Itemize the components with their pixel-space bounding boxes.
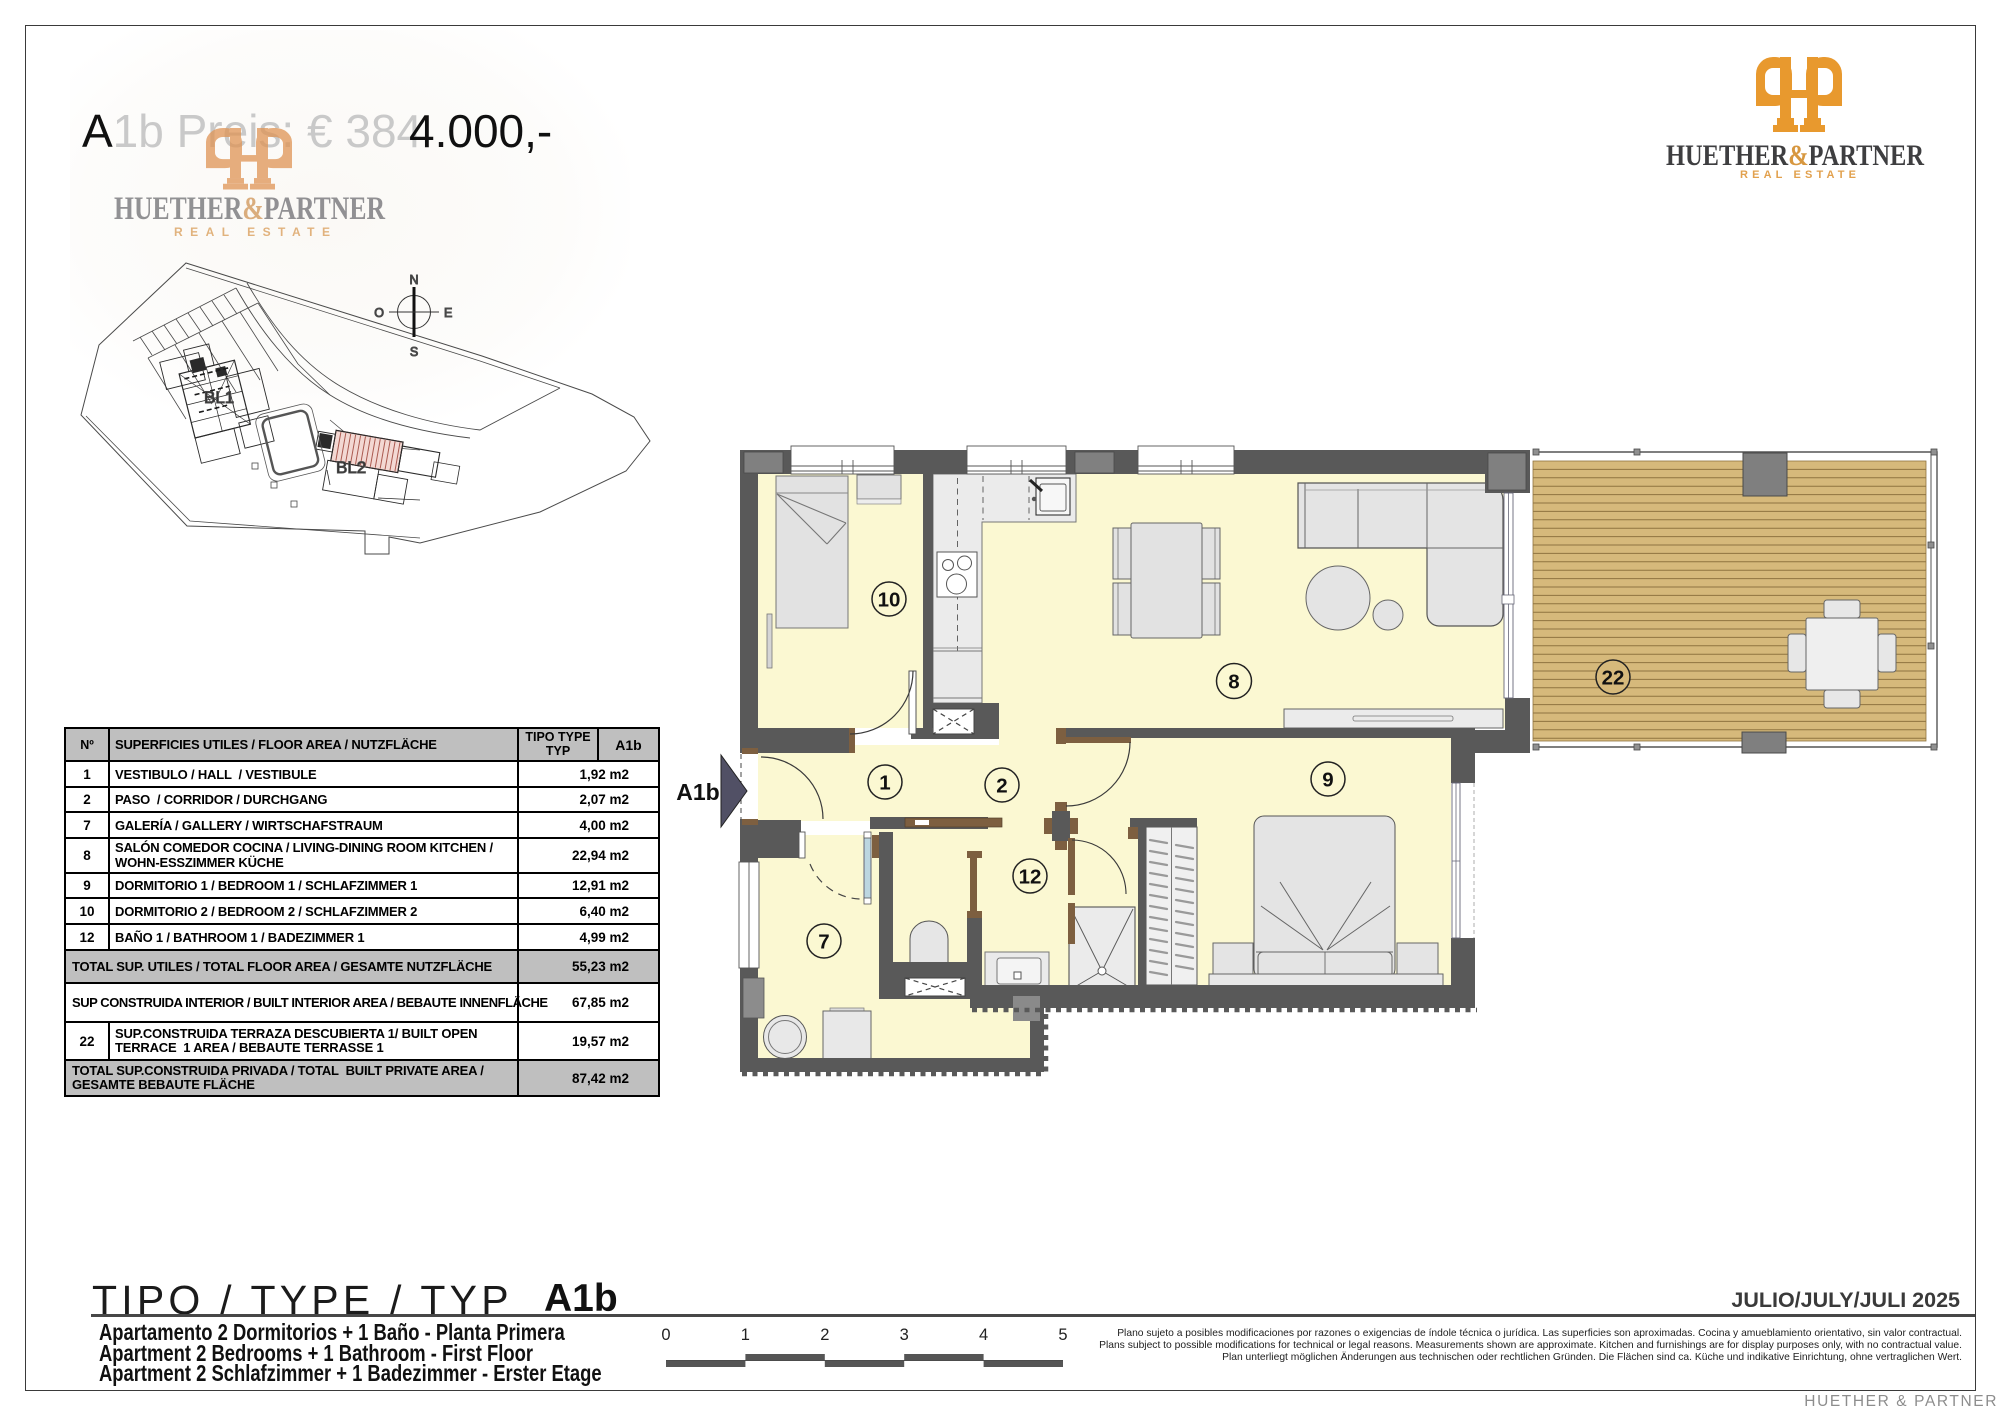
- svg-text:12: 12: [1019, 866, 1042, 889]
- svg-text:A1b: A1b: [676, 779, 719, 805]
- svg-text:0: 0: [661, 1326, 670, 1344]
- svg-text:2: 2: [820, 1326, 829, 1344]
- svg-text:10: 10: [878, 589, 901, 612]
- svg-text:7: 7: [818, 931, 829, 954]
- svg-text:2: 2: [996, 775, 1007, 798]
- svg-text:1: 1: [879, 772, 890, 795]
- svg-text:8: 8: [1228, 671, 1239, 694]
- svg-text:9: 9: [1322, 769, 1333, 792]
- svg-text:1: 1: [741, 1326, 750, 1344]
- svg-text:22: 22: [1602, 667, 1625, 690]
